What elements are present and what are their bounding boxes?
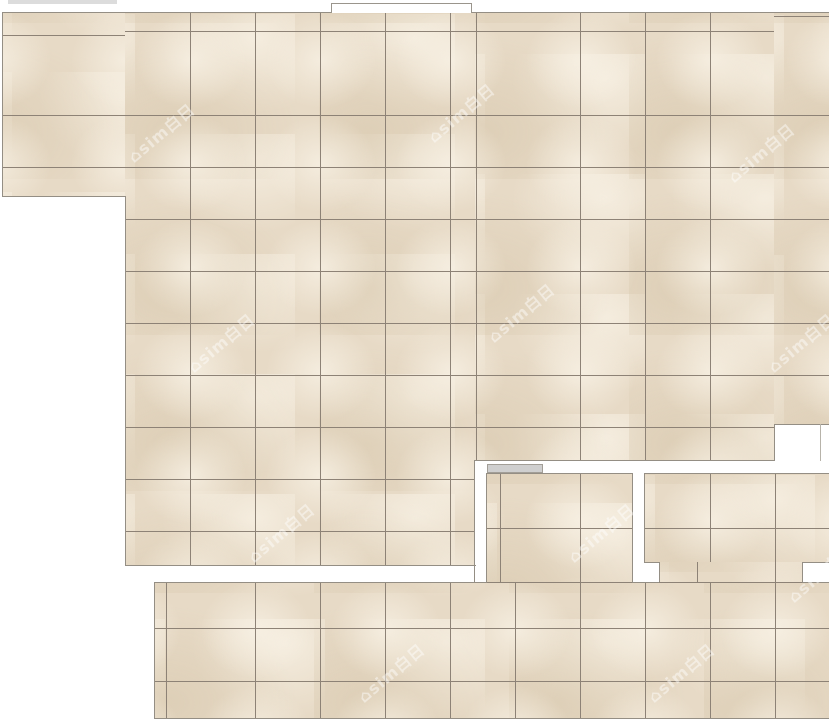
wall-edge-notch-left <box>774 424 775 461</box>
tile-region-a2[interactable] <box>125 13 475 565</box>
wall-edge-d-top-3 <box>802 582 829 583</box>
wall-edge-wing-bottom <box>2 196 126 197</box>
wall-edge-artifact-strip <box>8 0 117 4</box>
tile-region-c1[interactable] <box>645 474 829 562</box>
tile-region-a1[interactable] <box>2 13 125 197</box>
wall-edge-b-top <box>486 473 633 474</box>
wall-edge-cd-grout-2 <box>659 582 802 583</box>
wall-edge-c-notch2-left <box>802 562 803 583</box>
wall-edge-a-left <box>2 12 3 197</box>
tile-region-a3[interactable] <box>475 13 774 461</box>
tile-region-d[interactable] <box>155 583 829 719</box>
wall-edge-d-top-1 <box>154 582 487 583</box>
wall-edge-b-right <box>632 473 633 583</box>
floor-plan-canvas: ⌂sim白日⌂sim白日⌂sim白日⌂sim白日⌂sim白日⌂sim白日⌂sim… <box>0 0 829 723</box>
wall-edge-bd-grout-1 <box>487 582 632 583</box>
wall-opening[interactable] <box>331 3 472 13</box>
wall-edge-channel-left <box>474 460 475 583</box>
wall-edge-a-bottom-right <box>475 460 775 461</box>
tile-region-c2[interactable] <box>659 562 802 583</box>
wall-edge-d-left <box>154 583 155 719</box>
tile-region-b[interactable] <box>487 474 632 583</box>
wall-edge-c-notch2-top <box>802 562 829 563</box>
wall-edge-d-bottom <box>154 718 829 719</box>
wall-edge-c-top <box>644 473 829 474</box>
wall-edge-a-left-lower <box>125 196 126 566</box>
wall-edge-b-left <box>486 473 487 583</box>
door-threshold[interactable] <box>487 464 543 473</box>
wall-edge-d-top-2 <box>632 582 660 583</box>
wall-edge-c-notch1-top <box>644 562 660 563</box>
wall-edge-c-notch1-right <box>659 562 660 583</box>
wall-edge-a-bottom <box>125 565 476 566</box>
tile-region-a4[interactable] <box>774 13 829 424</box>
wall-edge-notch-inner <box>820 424 821 461</box>
wall-edge-c-left <box>644 473 645 563</box>
